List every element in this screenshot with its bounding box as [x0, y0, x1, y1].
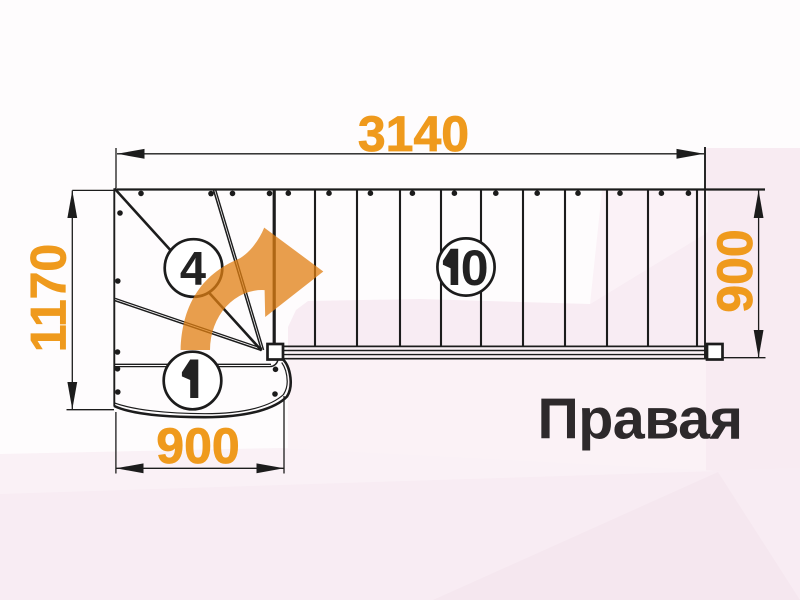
svg-text:3140: 3140	[358, 106, 469, 162]
svg-text:1170: 1170	[21, 244, 77, 352]
svg-text:Правая: Правая	[538, 388, 743, 452]
svg-text:0: 0	[461, 240, 489, 296]
svg-text:900: 900	[156, 418, 239, 474]
svg-text:900: 900	[707, 229, 763, 312]
